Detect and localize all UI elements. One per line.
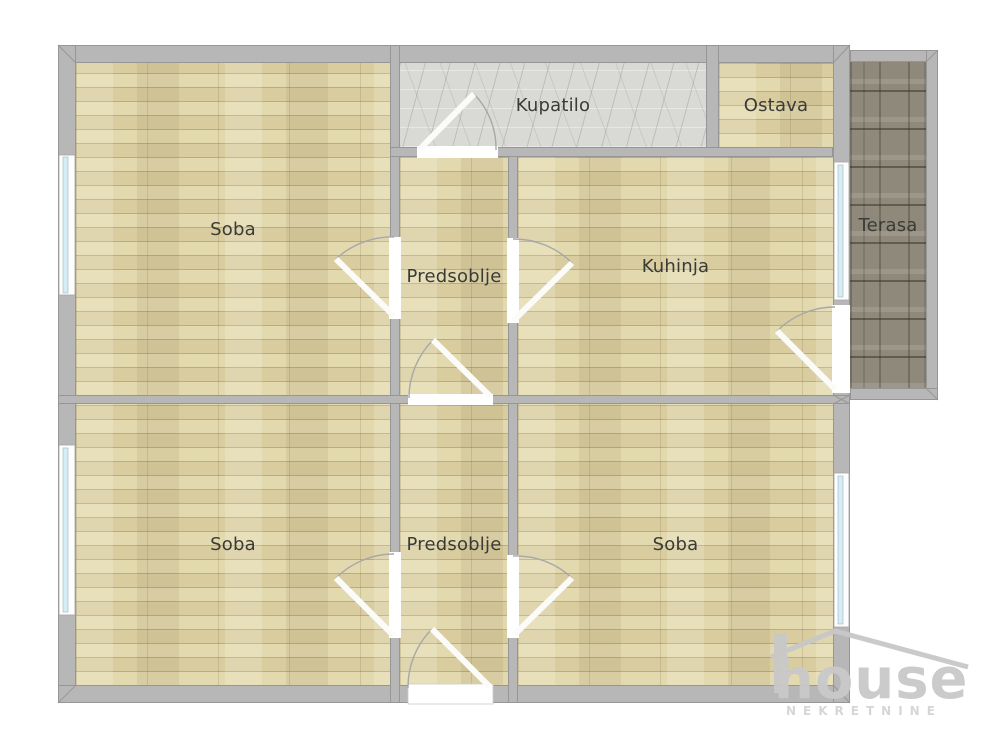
room-label-soba-bottom-left: Soba <box>210 534 256 555</box>
wall-exterior-bottom <box>58 685 850 703</box>
room-label-terasa: Terasa <box>858 215 917 236</box>
room-predsoblje-bottom: Predsoblje <box>400 404 508 685</box>
room-label-soba-bottom-right: Soba <box>653 534 699 555</box>
watermark-subtitle: NEKRETNINE <box>786 704 942 718</box>
room-kuhinja: Kuhinja <box>518 157 833 395</box>
room-label-predsoblje-top: Predsoblje <box>407 266 502 287</box>
floor-plan: Soba Kupatilo Ostava Predsoblje Kuhinja … <box>0 0 1000 751</box>
room-terasa: Terasa <box>850 62 926 388</box>
room-soba-top-left: Soba <box>76 63 390 395</box>
wall-below-kupatilo <box>390 147 833 157</box>
wall-terrace-top <box>850 50 938 62</box>
wall-middle-horizontal <box>58 395 850 404</box>
wall-exterior-right <box>833 45 850 703</box>
wall-interior-vertical-mid <box>508 147 518 703</box>
wall-exterior-top <box>58 45 850 63</box>
room-ostava: Ostava <box>719 63 833 147</box>
room-kupatilo: Kupatilo <box>400 63 706 147</box>
room-label-ostava: Ostava <box>744 95 809 116</box>
wall-terrace-right <box>926 50 938 400</box>
wall-kupatilo-ostava <box>706 45 719 157</box>
wall-interior-vertical-left <box>390 45 400 703</box>
room-predsoblje-top: Predsoblje <box>400 157 508 395</box>
room-soba-bottom-right: Soba <box>518 404 833 685</box>
room-soba-bottom-left: Soba <box>76 404 390 685</box>
room-label-predsoblje-bottom: Predsoblje <box>407 534 502 555</box>
wall-exterior-left <box>58 45 76 703</box>
room-label-kuhinja: Kuhinja <box>642 256 710 277</box>
wall-terrace-bottom <box>850 388 938 400</box>
room-label-soba-top-left: Soba <box>210 219 256 240</box>
room-label-kupatilo: Kupatilo <box>516 95 590 116</box>
